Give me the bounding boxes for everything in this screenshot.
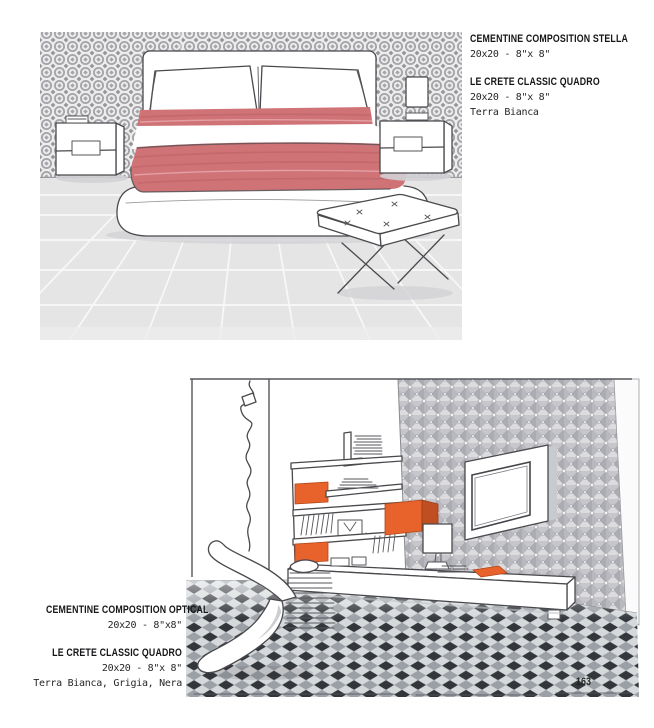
bedroom-illustration bbox=[40, 27, 462, 347]
orange-shelf-box bbox=[295, 542, 328, 563]
page-number: 163 bbox=[576, 676, 591, 688]
product-size: 20x20 - 8"x8" bbox=[12, 618, 182, 633]
product-name: CEMENTINE COMPOSITION OPTICAL bbox=[46, 603, 182, 618]
product-size: 20x20 - 8"x 8" bbox=[470, 47, 654, 62]
wall-canvas bbox=[406, 77, 428, 107]
product-name: CEMENTINE COMPOSITION STELLA bbox=[470, 32, 628, 47]
lowboard-foot bbox=[548, 610, 560, 619]
bedroom-sketch bbox=[40, 27, 462, 342]
product-name: LE CRETE CLASSIC QUADRO bbox=[46, 646, 182, 661]
product-finish: Terra Bianca, Grigia, Nera bbox=[12, 676, 182, 691]
nightstand-right bbox=[380, 113, 452, 181]
tray bbox=[66, 116, 88, 123]
catalog-page: CEMENTINE COMPOSITION STELLA 20x20 - 8"x… bbox=[0, 0, 654, 728]
product-finish: Terra Bianca bbox=[470, 105, 654, 120]
tray bbox=[406, 113, 428, 120]
product-size: 20x20 - 8"x 8" bbox=[470, 90, 654, 105]
open-book-box bbox=[338, 520, 362, 536]
caption-bedroom: CEMENTINE COMPOSITION STELLA 20x20 - 8"x… bbox=[470, 32, 654, 120]
livingroom-sketch bbox=[186, 373, 641, 703]
livingroom-illustration bbox=[186, 373, 641, 708]
nightstand-left bbox=[56, 116, 128, 183]
bed-blanket bbox=[131, 142, 407, 192]
product-name: LE CRETE CLASSIC QUADRO bbox=[470, 75, 628, 90]
product-size: 20x20 - 8"x 8" bbox=[12, 661, 182, 676]
caption-livingroom: CEMENTINE COMPOSITION OPTICAL 20x20 - 8"… bbox=[12, 603, 182, 691]
orange-shelf-box bbox=[295, 482, 328, 504]
book-pile bbox=[353, 436, 382, 454]
